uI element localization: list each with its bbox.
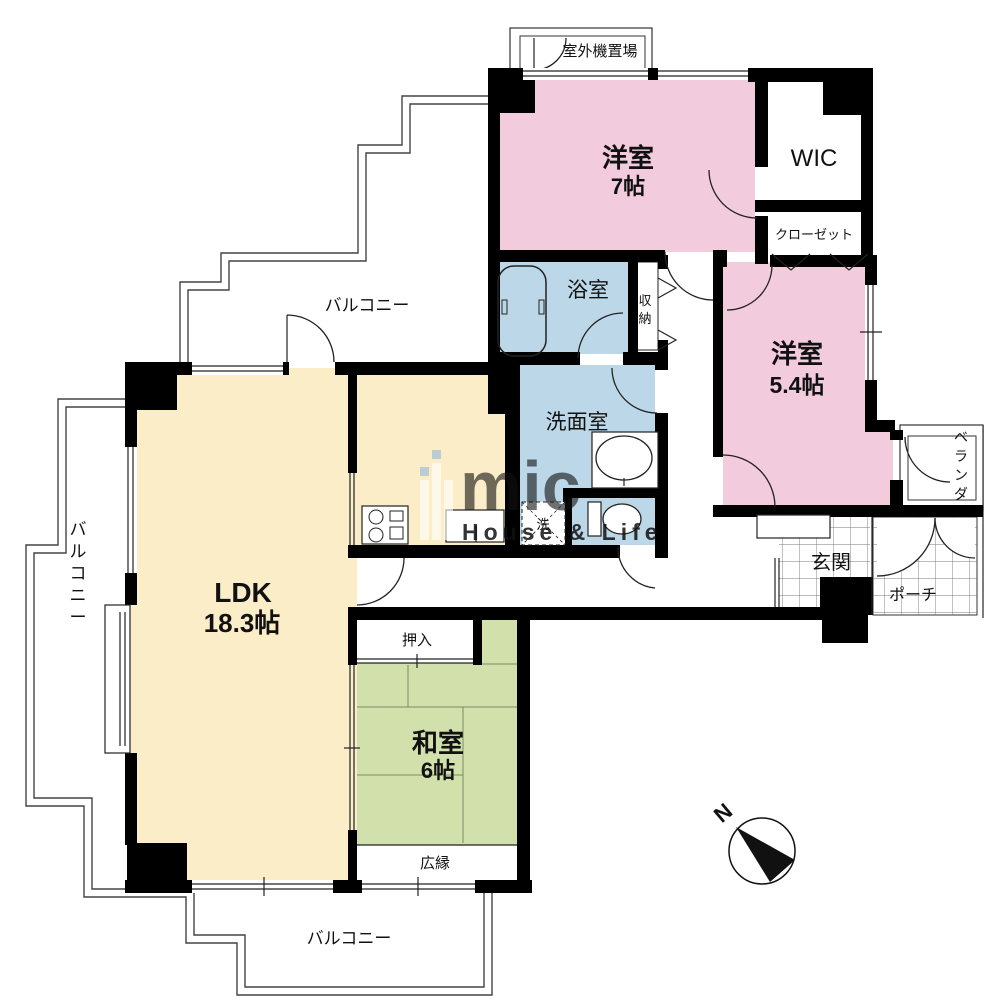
- label-wic: WIC: [791, 145, 838, 172]
- floor-plan: mic House & Life N 室外機置場 洋室 7帖 WIC クローゼッ…: [0, 0, 1000, 1000]
- sink-icon: [592, 432, 658, 488]
- label-balcony-left: バルコニー: [70, 520, 87, 627]
- label-balcony-bottom: バルコニー: [307, 929, 392, 948]
- floor-plan-canvas: mic House & Life N 室外機置場 洋室 7帖 WIC クローゼッ…: [0, 0, 1000, 1000]
- label-balcony-top: バルコニー: [325, 296, 410, 315]
- label-closet: クローゼット: [775, 227, 853, 242]
- label-bath: 浴室: [567, 279, 609, 302]
- watermark-tagline: House & Life: [462, 519, 663, 545]
- label-washroom: 洗面室: [546, 411, 609, 434]
- label-western7-size: 7帖: [611, 174, 645, 199]
- stove-icon: [362, 506, 408, 544]
- label-japanese: 和室: [412, 728, 464, 758]
- room-veranda: [900, 425, 983, 510]
- room-bath: [500, 262, 628, 354]
- label-western54: 洋室: [771, 339, 823, 369]
- room-japanese-col: [482, 613, 517, 665]
- label-hiroen: 広縁: [420, 855, 450, 872]
- label-japanese-size: 6帖: [421, 758, 455, 783]
- label-western7: 洋室: [602, 143, 654, 173]
- label-outdoor-unit: 室外機置場: [562, 43, 637, 60]
- label-genkan: 玄関: [811, 551, 851, 574]
- watermark-brand: mic: [460, 447, 581, 525]
- label-ldk-size: 18.3帖: [204, 608, 281, 638]
- label-oshiire: 押入: [402, 632, 432, 649]
- label-western54-size: 5.4帖: [770, 372, 825, 398]
- label-laundry: 洗: [536, 517, 549, 532]
- label-ldk: LDK: [214, 577, 272, 608]
- bay-window: [105, 605, 130, 753]
- shoe-cabinet: [757, 515, 830, 538]
- label-porch: ポーチ: [889, 586, 937, 604]
